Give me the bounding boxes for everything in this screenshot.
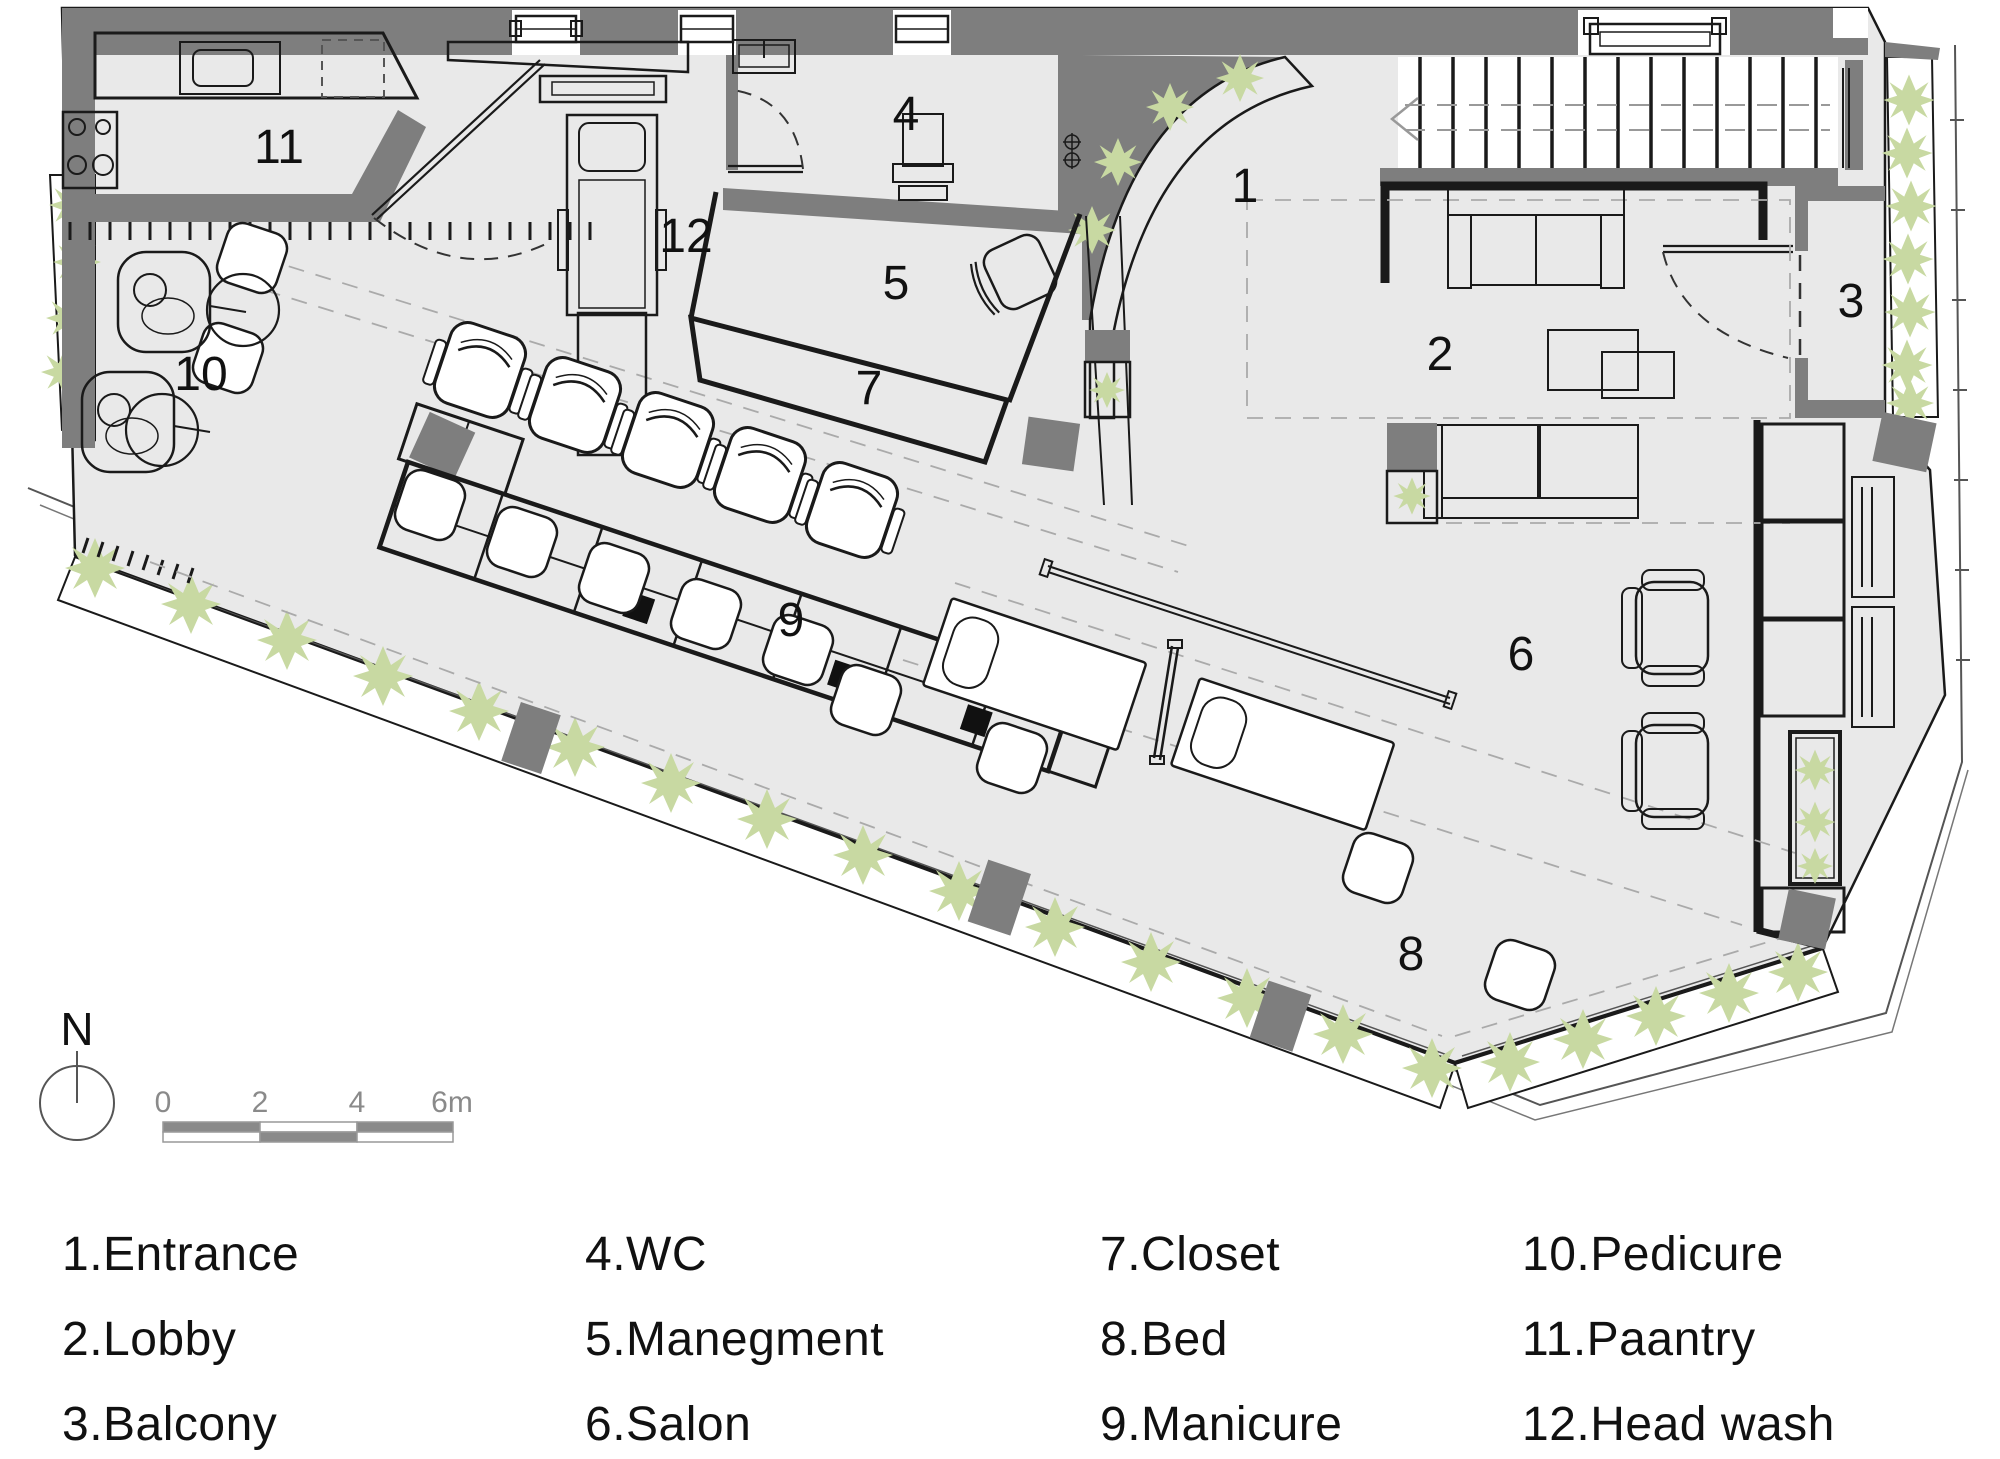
legend-item-pedicure: 10.Pedicure (1522, 1212, 1835, 1297)
room-label-4: 4 (893, 88, 920, 141)
room-label-10: 10 (174, 348, 227, 401)
legend-item-balcony: 3.Balcony (62, 1382, 299, 1459)
scale-tick-0: 0 (155, 1086, 172, 1119)
room-label-1: 1 (1232, 160, 1259, 213)
scale-tick-6m: 6m (431, 1086, 473, 1119)
room-label-12: 12 (659, 210, 712, 263)
scale-tick-4: 4 (349, 1086, 366, 1119)
room-label-3: 3 (1838, 275, 1865, 328)
legend-item-entrance: 1.Entrance (62, 1212, 299, 1297)
room-label-5: 5 (883, 257, 910, 310)
legend-item-manegment: 5.Manegment (585, 1297, 884, 1382)
floor-plan-drawing: 1 2 3 4 5 6 7 8 9 10 11 12 N 0 2 4 6m (0, 0, 2000, 1170)
room-label-8: 8 (1398, 928, 1425, 981)
legend: 1.Entrance 2.Lobby 3.Balcony 4.WC 5.Mane… (0, 1212, 2000, 1459)
room-label-7: 7 (856, 362, 883, 415)
room-label-6: 6 (1508, 628, 1535, 681)
legend-item-paantry: 11.Paantry (1522, 1297, 1835, 1382)
legend-column-3: 7.Closet 8.Bed 9.Manicure (1100, 1212, 1342, 1459)
legend-column-1: 1.Entrance 2.Lobby 3.Balcony (62, 1212, 299, 1459)
legend-item-lobby: 2.Lobby (62, 1297, 299, 1382)
north-label: N (60, 1003, 93, 1055)
room-label-11: 11 (254, 121, 304, 174)
staircase (1392, 57, 1849, 168)
north-arrow-icon: N (40, 1003, 114, 1140)
floor-plan-page: 1 2 3 4 5 6 7 8 9 10 11 12 N 0 2 4 6m 1.… (0, 0, 2000, 1459)
legend-item-salon: 6.Salon (585, 1382, 884, 1459)
legend-item-closet: 7.Closet (1100, 1212, 1342, 1297)
legend-column-2: 4.WC 5.Manegment 6.Salon (585, 1212, 884, 1459)
room-label-9: 9 (778, 594, 805, 647)
room-label-2: 2 (1427, 328, 1454, 381)
legend-item-bed: 8.Bed (1100, 1297, 1342, 1382)
legend-item-manicure: 9.Manicure (1100, 1382, 1342, 1459)
legend-item-headwash: 12.Head wash (1522, 1382, 1835, 1459)
legend-item-wc: 4.WC (585, 1212, 884, 1297)
legend-column-4: 10.Pedicure 11.Paantry 12.Head wash (1522, 1212, 1835, 1459)
scale-bar: 0 2 4 6m (155, 1086, 473, 1142)
scale-tick-2: 2 (252, 1086, 269, 1119)
